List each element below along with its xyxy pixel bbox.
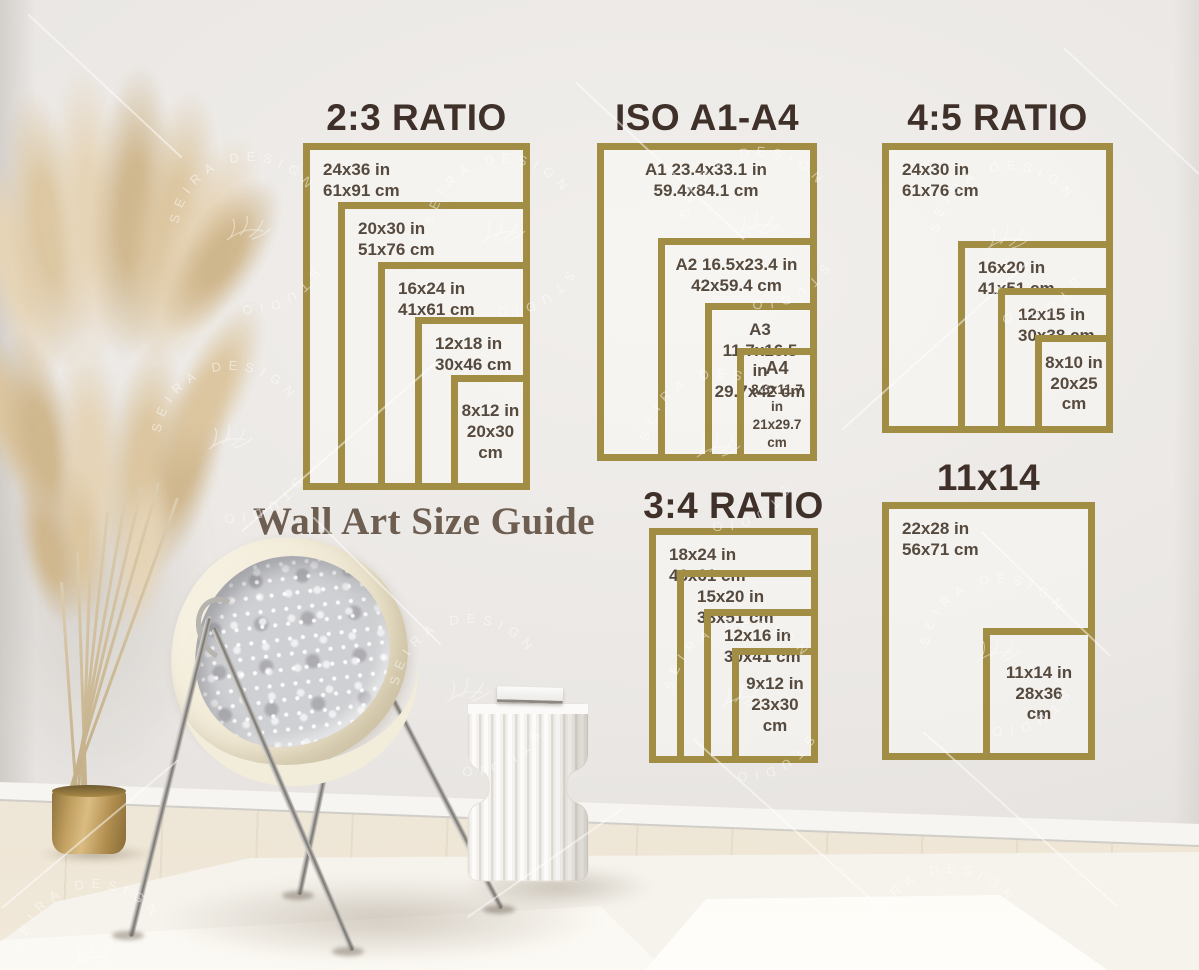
size-group-title: 4:5 RATIO — [907, 99, 1088, 136]
size-label-line: 20x25 — [1050, 374, 1097, 395]
size-label-name: A4 — [765, 358, 788, 380]
size-label-line: 51x76 cm — [358, 240, 435, 261]
size-label-line: 12x18 in — [435, 334, 502, 355]
size-label-line: 61x91 cm — [323, 181, 400, 202]
side-table — [455, 683, 605, 895]
size-label-line: 9x12 in — [746, 674, 804, 695]
size-label: 11x14 in28x36cm — [990, 635, 1088, 753]
size-label-line: 16x24 in — [398, 279, 465, 300]
size-label-line: 16x20 in — [978, 258, 1045, 279]
guide-ratio-2-3: 24x36 in61x91 cm20x30 in51x76 cm16x24 in… — [303, 143, 530, 490]
size-frame: 8x10 in20x25cm — [1035, 335, 1113, 433]
size-label-line: 21x29.7 — [753, 416, 802, 434]
size-label-line: 15x20 in — [697, 587, 764, 608]
size-label-line: cm — [1027, 704, 1052, 725]
size-group-title: ISO A1-A4 — [615, 99, 799, 136]
size-label: A48.3x11.7 in21x29.7cm — [744, 355, 810, 454]
size-group-title: 3:4 RATIO — [643, 487, 824, 524]
size-label-line: cm — [1062, 394, 1087, 415]
wall-corner-shadow-right — [1173, 0, 1199, 862]
size-label-line: cm — [478, 443, 503, 464]
plant-pot — [52, 789, 126, 854]
size-label-line: 12x16 in — [724, 626, 791, 647]
guide-size-11x14: 22x28 in56x71 cm11x14 in28x36cm — [882, 502, 1095, 760]
size-label-line: 24x30 in — [902, 160, 969, 181]
size-group-title: 2:3 RATIO — [326, 99, 507, 136]
size-label-line: cm — [767, 434, 787, 452]
size-label-line: 12x15 in — [1018, 305, 1085, 326]
guide-iso-a1-a4: A1 23.4x33.1 in59.4x84.1 cmA2 16.5x23.4 … — [597, 143, 817, 461]
size-label: 8x12 in20x30cm — [458, 382, 523, 483]
size-label-line: A1 23.4x33.1 in — [645, 160, 767, 181]
leg-contact-shadow — [483, 905, 515, 914]
size-label-line: 8x10 in — [1045, 353, 1103, 374]
size-frame: 8x12 in20x30cm — [451, 375, 530, 490]
guide-heading: Wall Art Size Guide — [253, 499, 595, 544]
leg-contact-shadow — [282, 891, 314, 900]
size-label-line: 8.3x11.7 in — [746, 381, 808, 416]
size-label-line: 8x12 in — [462, 401, 520, 422]
size-label-line: 24x36 in — [323, 160, 390, 181]
guide-ratio-4-5: 24x30 in61x76 cm16x20 in41x51 cm12x15 in… — [882, 143, 1113, 433]
size-frame: 11x14 in28x36cm — [983, 628, 1095, 760]
size-frame: 9x12 in23x30cm — [732, 648, 818, 763]
size-label-line: 56x71 cm — [902, 540, 979, 561]
size-label-line: cm — [763, 716, 788, 737]
leg-contact-shadow — [332, 947, 364, 956]
size-label-line: 61x76 cm — [902, 181, 979, 202]
size-frame: A48.3x11.7 in21x29.7cm — [737, 348, 817, 461]
size-label-line: 18x24 in — [669, 545, 736, 566]
size-label-line: 22x28 in — [902, 519, 969, 540]
size-label-line: 30x46 cm — [435, 355, 512, 376]
size-group-title: 11x14 — [937, 459, 1040, 496]
size-label-line: 42x59.4 cm — [691, 276, 782, 297]
size-label-line: 28x36 — [1015, 684, 1062, 705]
book-on-table — [497, 686, 563, 704]
size-label-line: 23x30 — [751, 695, 798, 716]
room-scene: 2:3 RATIO24x36 in61x91 cm20x30 in51x76 c… — [0, 0, 1199, 970]
leg-contact-shadow — [112, 931, 144, 940]
size-label: 8x10 in20x25cm — [1042, 342, 1106, 426]
size-label-line: 11x14 in — [1006, 663, 1072, 684]
size-label-line: 59.4x84.1 cm — [654, 181, 759, 202]
guide-ratio-3-4: 18x24 in46x61 cm15x20 in38x51 cm12x16 in… — [649, 528, 818, 763]
size-label-line: 20x30 — [467, 422, 514, 443]
size-label: 9x12 in23x30cm — [739, 655, 811, 756]
size-label-line: A2 16.5x23.4 in — [676, 255, 798, 276]
plant-pot-rim — [52, 785, 126, 797]
size-label-line: 20x30 in — [358, 219, 425, 240]
